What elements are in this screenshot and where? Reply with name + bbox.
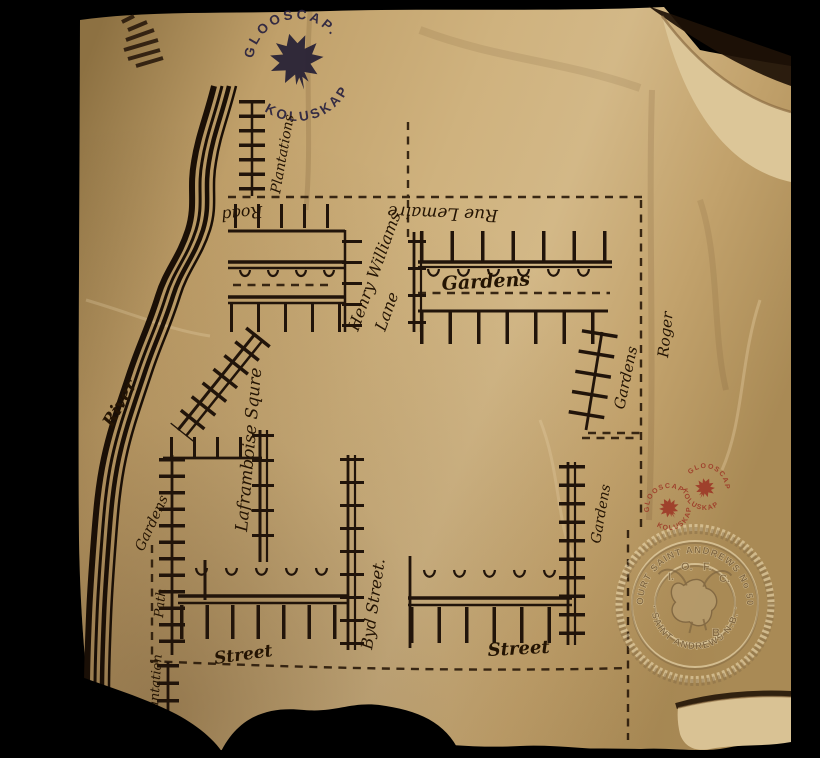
seal-letter-b: B.	[712, 627, 723, 639]
path-label: Path	[152, 588, 170, 620]
seal-letter-o: O.	[681, 561, 693, 573]
street-right-label: Street	[487, 637, 551, 661]
tear-bottom-sliver	[470, 748, 688, 758]
seal-letter-f: F.	[703, 561, 712, 573]
seal-letter-i: I.	[668, 571, 674, 583]
gardens-top-label: Gardens	[441, 268, 531, 295]
map-photo: GLOOSCAP. KOLUSKAP River Plantations Roa…	[0, 0, 820, 758]
rue-lemaire-label: Rue Lemaire	[387, 201, 499, 225]
photograph-backdrop: GLOOSCAP. KOLUSKAP River Plantations Roa…	[0, 0, 820, 758]
seal-letter-c: C.	[719, 573, 730, 585]
